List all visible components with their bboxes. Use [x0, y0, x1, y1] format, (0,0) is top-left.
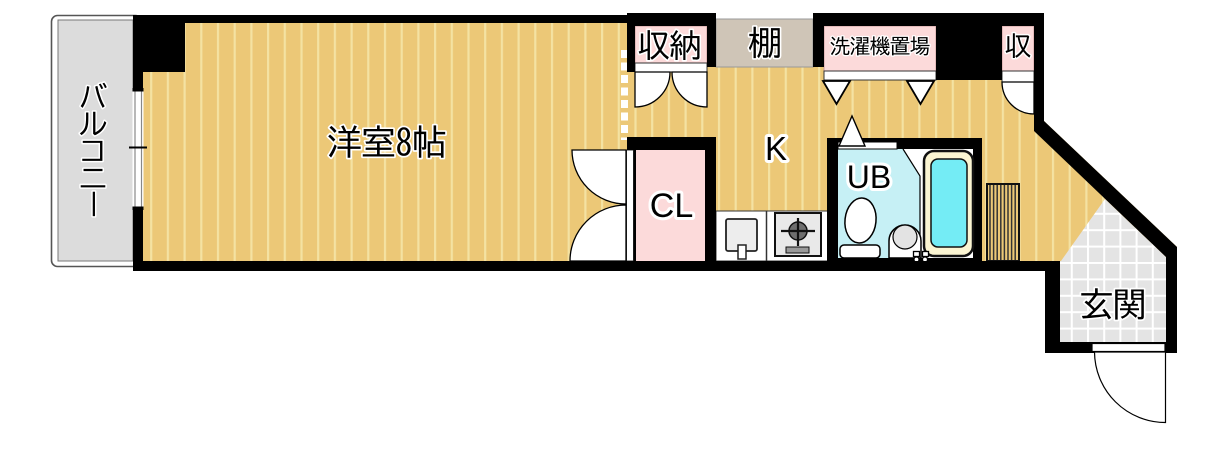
svg-text:CL: CL — [650, 187, 693, 225]
svg-text:K: K — [765, 130, 787, 167]
svg-text:UB: UB — [847, 159, 891, 195]
